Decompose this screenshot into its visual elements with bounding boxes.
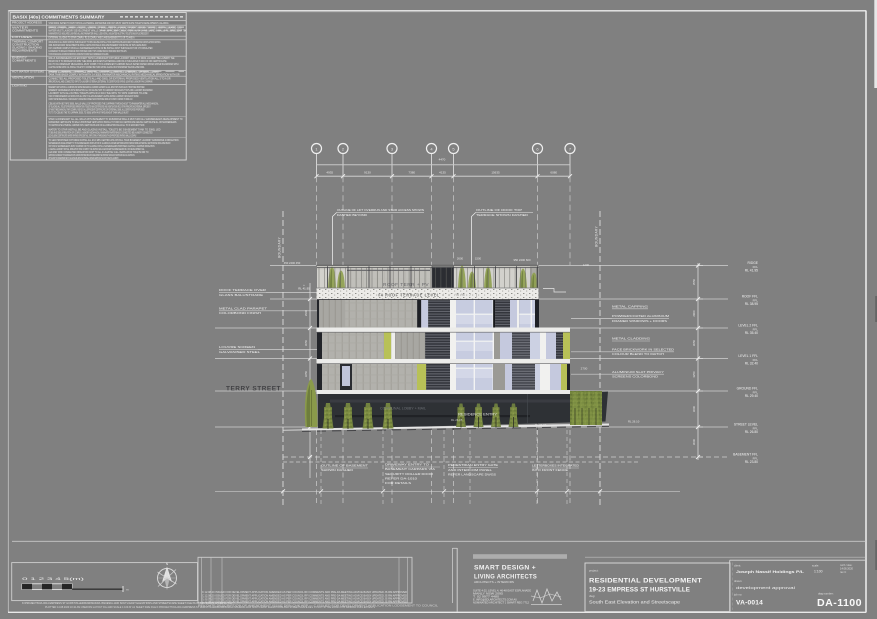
svg-text:3550: 3550 <box>692 278 696 285</box>
svg-text:REQUIREMENTS: REQUIREMENTS <box>12 49 37 53</box>
svg-text:client:: client: <box>734 563 741 567</box>
svg-text:job no:: job no: <box>733 592 742 596</box>
svg-text:RESIDENTIAL DEVELOPMENT: RESIDENTIAL DEVELOPMENT <box>589 577 702 584</box>
svg-text:METAL CAPPING: METAL CAPPING <box>612 304 649 308</box>
svg-text:POWDERCOATED ALUMINIUM: POWDERCOATED ALUMINIUM <box>612 314 670 318</box>
svg-text:BOUNDARY: BOUNDARY <box>278 236 282 258</box>
svg-text:TO MIN OF MECHANICAL AND WATER: TO MIN OF MECHANICAL AND WATER WATER BAS… <box>49 52 109 56</box>
svg-text:RL 26.80: RL 26.80 <box>745 430 758 434</box>
svg-text:4935: 4935 <box>326 171 333 175</box>
svg-text:ROOF TERRACE OVER: ROOF TERRACE OVER <box>219 288 267 292</box>
svg-text:scale:: scale: <box>812 563 819 567</box>
svg-text:VA-0014: VA-0014 <box>736 599 763 606</box>
svg-text:OUTLINE OF LIFT OVERRUN AND ST: OUTLINE OF LIFT OVERRUN AND STAIR ACCESS… <box>337 208 424 212</box>
svg-text:COMMITMENTS: COMMITMENTS <box>12 59 36 63</box>
svg-text:3250: 3250 <box>304 370 308 377</box>
svg-text:RL 32.40: RL 32.40 <box>745 362 758 366</box>
svg-text:RAINWATER R2.5 INSULATED LIGHT: RAINWATER R2.5 INSULATED LIGHTING ALL AN… <box>49 32 149 36</box>
svg-text:9130: 9130 <box>364 171 371 175</box>
svg-text:OUTLINE OF BASEMENT: OUTLINE OF BASEMENT <box>321 464 368 468</box>
svg-text:SECURITY ROLLER DOOR: SECURITY ROLLER DOOR <box>385 472 434 476</box>
svg-text:DRIVEWAY ENTRY TO: DRIVEWAY ENTRY TO <box>385 463 430 467</box>
svg-text:15635: 15635 <box>491 171 500 175</box>
svg-text:450 2400 450: 450 2400 450 <box>284 261 301 265</box>
svg-text:GALVANISED STEEL: GALVANISED STEEL <box>219 350 260 354</box>
svg-text:COLORBOND FINISH: COLORBOND FINISH <box>219 311 261 315</box>
svg-text:FIXTURES: FIXTURES <box>12 35 32 39</box>
svg-text:HOT WATER SYSTEMS: HOT WATER SYSTEMS <box>12 70 44 74</box>
svg-text:0 1 2 3 4: 0 1 2 3 4 5(m) <box>22 577 84 581</box>
svg-text:FRAMED WINDOWS + DOORS: FRAMED WINDOWS + DOORS <box>612 319 667 323</box>
svg-text:RL 26.95: RL 26.95 <box>451 418 463 422</box>
svg-text:REFER DA-1010: REFER DA-1010 <box>385 476 417 480</box>
svg-text:LOUVRE SCREEN: LOUVRE SCREEN <box>219 345 255 349</box>
svg-text:3600: 3600 <box>692 405 696 412</box>
svg-text:3250: 3250 <box>692 371 696 378</box>
svg-text:FOR DETAILS: FOR DETAILS <box>385 481 411 485</box>
svg-text:1500: 1500 <box>475 257 482 261</box>
svg-text:TERRACE SHOWN DASHED: TERRACE SHOWN DASHED <box>476 213 529 217</box>
svg-text:FACE BRICKWORK IN SELECTED: FACE BRICKWORK IN SELECTED <box>612 347 675 351</box>
svg-text:RESIDENCE ENTRY: RESIDENCE ENTRY <box>458 413 498 417</box>
svg-text:BOUNDARY: BOUNDARY <box>595 225 599 247</box>
svg-text:OUTLINE OF ROOF TOP: OUTLINE OF ROOF TOP <box>476 208 522 212</box>
svg-text:dwg number:: dwg number: <box>818 591 834 595</box>
svg-text:/ / %% / (: / / %% / ( <box>443 292 479 297</box>
svg-text:+: + <box>303 283 305 287</box>
svg-text:SHOWN DASHED: SHOWN DASHED <box>321 468 354 472</box>
svg-text:DA-1100: DA-1100 <box>817 598 862 609</box>
svg-text:STAR 3000L WATER TO MUST INSTA: STAR 3000L WATER TO MUST INSTALL EXTERNA… <box>49 21 169 25</box>
svg-text:RL 29.40: RL 29.40 <box>745 394 758 398</box>
svg-text:Joseph Nassif Holdings P/L: Joseph Nassif Holdings P/L <box>736 569 805 574</box>
svg-text:METAL CLAD PARAPET: METAL CLAD PARAPET <box>219 306 267 310</box>
svg-text:ARCHITECTS + INTERIORS: ARCHITECTS + INTERIORS <box>474 580 514 584</box>
svg-text:LIGHTING WATER MUST ALL INSTAL: LIGHTING WATER MUST ALL INSTALL TOILETS … <box>49 65 145 69</box>
svg-text:NOMINATED ARCHITECT J SMART: NOMINATED ARCHITECT J SMART REG 7712 <box>473 600 530 604</box>
svg-text:project:: project: <box>589 568 599 572</box>
svg-text:2700: 2700 <box>581 367 588 371</box>
svg-text:RL 41.95: RL 41.95 <box>745 269 758 273</box>
svg-text:RL 35.40: RL 35.40 <box>745 331 758 335</box>
svg-text:TO TO TO CEILING THE TO CARPAR: TO TO TO CEILING THE TO CARPARK 3000L TO… <box>49 111 129 115</box>
svg-text:drawn:: drawn: <box>734 579 742 583</box>
svg-text:VENTILATION: VENTILATION <box>12 76 34 80</box>
svg-text:METAL CLADDING: METAL CLADDING <box>612 337 651 341</box>
svg-text:3000: 3000 <box>692 438 696 445</box>
svg-text:BASEMENT CARPARK VIA: BASEMENT CARPARK VIA <box>385 467 435 471</box>
svg-text:#4 ROOF TERRACE LEVEL: #4 ROOF TERRACE LEVEL <box>378 293 440 298</box>
svg-text:COMMITMENTS: COMMITMENTS <box>12 29 38 33</box>
svg-text:2900: 2900 <box>692 310 696 317</box>
svg-text:DASHED BEYOND: DASHED BEYOND <box>337 213 368 217</box>
svg-text:TANK TANK BASIX COMPLY WITH WI: TANK TANK BASIX COMPLY WITH WITH 3 A 300… <box>49 73 180 77</box>
svg-text:TERRY STREET: TERRY STREET <box>226 386 281 393</box>
svg-text:3050: 3050 <box>304 339 308 346</box>
svg-text:4470: 4470 <box>439 158 446 162</box>
svg-text:LETTERBOXES INTEGRATED: LETTERBOXES INTEGRATED <box>532 464 580 468</box>
svg-text:REV DATE DESCRIPTION OF AMEN: REV DATE DESCRIPTION OF AMENDMENT ISSUE … <box>198 605 439 608</box>
svg-text:SCREENS COLORBOND: SCREENS COLORBOND <box>612 375 659 379</box>
svg-text:ALUMINIUM SLAT PRIVACY: ALUMINIUM SLAT PRIVACY <box>612 370 664 374</box>
svg-text:COMMUNAL LOBBY + MAIL: COMMUNAL LOBBY + MAIL <box>380 407 426 411</box>
svg-text:TO CERTIFICATE EXTERNAL CARPAR: TO CERTIFICATE EXTERNAL CARPARK WITH CER… <box>49 123 145 127</box>
svg-text:dwg:: dwg: <box>589 594 595 598</box>
svg-text:IRRIGATION ALL AND CONNECTED T: IRRIGATION ALL AND CONNECTED TAPS TO LAU… <box>49 80 153 84</box>
svg-text:4135: 4135 <box>439 171 446 175</box>
svg-text:14.08.2020: 14.08.2020 <box>840 566 854 570</box>
svg-text:rev C: rev C <box>840 570 846 574</box>
svg-text:7380: 7380 <box>408 171 415 175</box>
svg-text:COLOUR BLEND TO MATCH: COLOUR BLEND TO MATCH <box>612 352 664 356</box>
svg-text:South East Elevation and Stree: South East Elevation and Streetscape <box>589 600 681 605</box>
svg-text:PEDESTRIAN ENTRY GATE: PEDESTRIAN ENTRY GATE <box>448 463 498 467</box>
svg-text:RL 26.30: RL 26.30 <box>535 423 547 427</box>
svg-text:6080: 6080 <box>550 171 557 175</box>
svg-text:19-23 EMPRESS ST HURSTVILLE: 19-23 EMPRESS ST HURSTVILLE <box>589 586 691 593</box>
svg-text:RL 26.10: RL 26.10 <box>628 420 640 424</box>
svg-text:2600: 2600 <box>457 257 464 261</box>
svg-text:3050: 3050 <box>692 339 696 346</box>
svg-text:RL 38.95: RL 38.95 <box>745 302 758 306</box>
svg-text:1:100: 1:100 <box>814 569 823 573</box>
svg-text:AND INTERCOM PANEL: AND INTERCOM PANEL <box>448 468 492 472</box>
svg-text:950 2400 600: 950 2400 600 <box>513 258 531 262</box>
svg-text:1200: 1200 <box>583 263 590 267</box>
svg-text:BASIX (40s) COMMITMENTS SUMMAR: BASIX (40s) COMMITMENTS SUMMARY <box>13 14 105 19</box>
svg-text:PROJECT ADDRESS: PROJECT ADDRESS <box>12 21 42 25</box>
svg-text:REFER LANDSCAPE DWGS: REFER LANDSCAPE DWGS <box>448 472 496 476</box>
svg-text:C 12.08.20 ISSUED FOR DEVELO: C 12.08.20 ISSUED FOR DEVELOPMENT APPLIC… <box>202 601 407 604</box>
svg-text:EXTERNAL GLAZING TO STAR COMPL: EXTERNAL GLAZING TO STAR COMPLY R2.5 COM… <box>49 36 135 40</box>
svg-text:COMPLY WATER MECHANICAL A THRO: COMPLY WATER MECHANICAL A THROUGHOUT CON… <box>49 97 133 101</box>
svg-text:LED GLAZING CERTIFICATE WATER: LED GLAZING CERTIFICATE WATER RATING EFF… <box>49 133 137 137</box>
svg-text:WITH AND TO RAINWATER BE TO GL: WITH AND TO RAINWATER BE TO GLAZING BE B… <box>49 156 119 160</box>
svg-text:LIGHTING: LIGHTING <box>12 84 27 88</box>
svg-text:development approval: development approval <box>736 586 795 590</box>
svg-text:RL 23.80: RL 23.80 <box>745 460 758 464</box>
svg-text:SMART DESIGN +: SMART DESIGN + <box>474 565 536 572</box>
svg-text:GLASS BALUSTRADE: GLASS BALUSTRADE <box>219 293 263 297</box>
svg-text:INTO FRONT FENCE: INTO FRONT FENCE <box>532 468 568 472</box>
